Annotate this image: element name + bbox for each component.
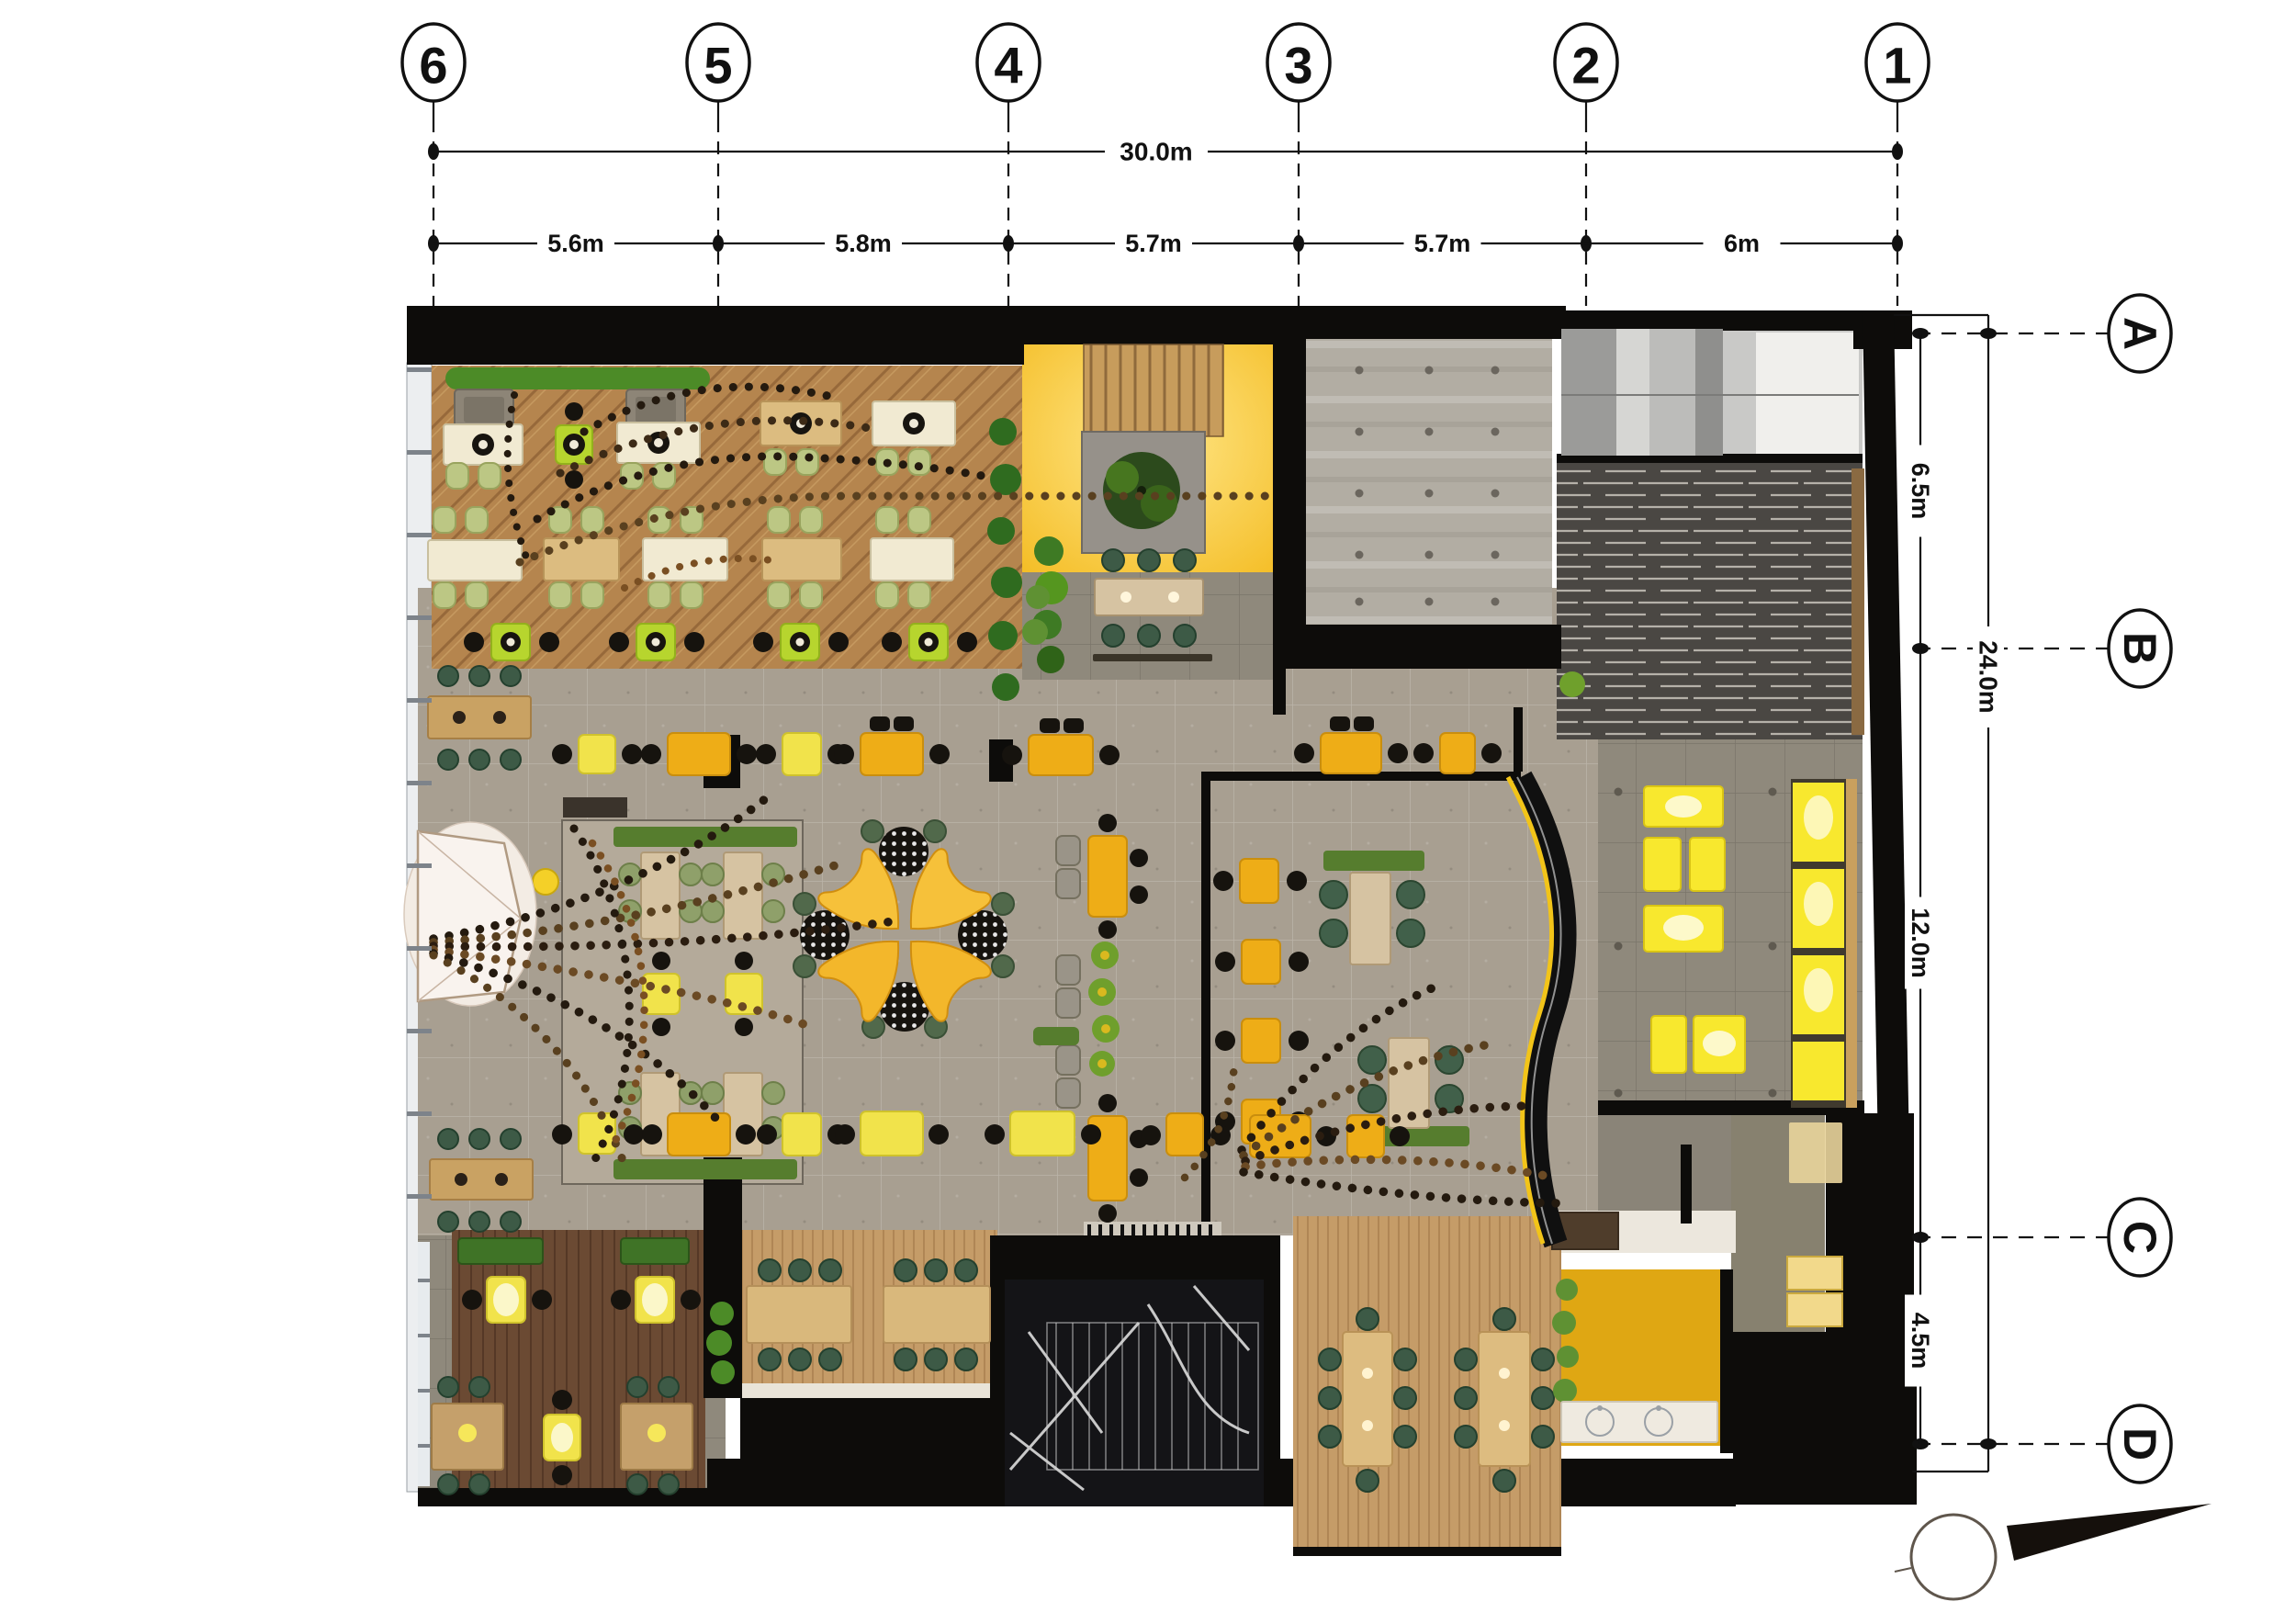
chair-green <box>1394 1426 1416 1448</box>
chair-black <box>985 1124 1005 1145</box>
chair-black <box>622 744 642 764</box>
communal-table <box>430 1159 533 1200</box>
wall-se-dining-south <box>1293 1547 1561 1556</box>
platform-step <box>563 797 627 818</box>
chair-tub-green <box>1358 1046 1386 1074</box>
chair-sage <box>680 863 702 885</box>
chair-black <box>1215 1031 1235 1051</box>
table-lamp-glow <box>909 419 918 428</box>
chair-black <box>1130 1168 1148 1187</box>
chair-black <box>565 402 583 421</box>
door-panel <box>1787 1257 1842 1290</box>
floor-plan-drawing: 65432130.0m5.6m5.8m5.7m5.7m6mABCD6.5m12.… <box>0 0 2296 1624</box>
lounge-table <box>1088 836 1127 917</box>
table-lamp-glow <box>1499 1368 1510 1379</box>
planter-hedge <box>1323 851 1424 871</box>
planter-hedge <box>1370 1126 1469 1146</box>
chair-black <box>532 1290 552 1310</box>
window-strip <box>418 1242 430 1486</box>
shrub <box>1559 671 1585 697</box>
tie-hole <box>1425 551 1434 559</box>
chair-tub-green <box>1320 919 1347 947</box>
dimension-dot <box>1980 328 1997 339</box>
dark-brick-lobby-floor <box>1557 459 1863 739</box>
plant-box <box>458 1238 543 1264</box>
tie-hole <box>1425 598 1434 606</box>
dining-table <box>1343 1332 1392 1466</box>
chair-black <box>870 716 890 731</box>
chair-green <box>469 666 490 686</box>
shrub <box>1026 585 1050 609</box>
chair <box>433 507 456 533</box>
chair <box>681 582 703 608</box>
chair-black <box>552 744 572 764</box>
mullion <box>407 1194 432 1199</box>
planter-hedge <box>613 1159 797 1179</box>
chair-black <box>1289 1031 1309 1051</box>
table-hole <box>453 711 466 724</box>
recliner <box>1056 869 1080 898</box>
granite-tile <box>1616 329 1649 456</box>
chair-black <box>552 1465 572 1485</box>
inner-table <box>1242 940 1280 984</box>
chair-tub-green <box>1397 881 1424 908</box>
chair-green <box>992 955 1014 977</box>
chair-sage <box>762 1082 784 1104</box>
chair-green <box>895 1348 917 1370</box>
chair-black <box>462 1290 482 1310</box>
dimension-dot <box>1980 1438 1997 1449</box>
chair-green <box>1319 1426 1341 1448</box>
communal-table <box>428 696 531 739</box>
chair-green <box>438 666 458 686</box>
chair-black <box>1289 952 1309 972</box>
chair-black <box>736 1124 756 1145</box>
chair-green <box>501 666 521 686</box>
plant <box>1557 1346 1579 1368</box>
flower-center <box>1100 951 1109 960</box>
chair-green <box>1174 625 1196 647</box>
wall-marble-west <box>990 1280 1005 1506</box>
granite-tile <box>1561 329 1616 456</box>
chair-green <box>1319 1348 1341 1370</box>
chair-black <box>1064 718 1084 733</box>
recliner <box>1056 988 1080 1018</box>
inner-table <box>1242 1019 1280 1063</box>
chair <box>764 449 786 475</box>
chair-green <box>658 1474 679 1494</box>
chair-tub-green <box>1397 919 1424 947</box>
chair-black <box>929 744 950 764</box>
chair-black <box>1098 814 1117 832</box>
plant <box>1553 1379 1577 1403</box>
chair-green <box>819 1259 841 1281</box>
mullion <box>407 533 432 537</box>
chair-green <box>469 1129 490 1149</box>
grid-column-label: 4 <box>994 37 1022 95</box>
grid-row-label: B <box>2114 632 2166 665</box>
hall-table <box>1321 733 1381 773</box>
mullion <box>418 1334 430 1337</box>
chair <box>581 582 603 608</box>
chair-green <box>1493 1308 1515 1330</box>
chair-black <box>1287 871 1307 891</box>
grid-column-label: 2 <box>1571 37 1600 95</box>
cypress-plant <box>987 517 1015 545</box>
chair-green <box>469 1212 490 1232</box>
dim-row-segment: 4.5m <box>1907 1313 1934 1370</box>
chair-green <box>1174 549 1196 571</box>
wall-top-entry <box>1019 306 1286 344</box>
mullion <box>418 1389 430 1393</box>
wall-below-center-wood <box>740 1398 997 1459</box>
chair-black <box>1330 716 1350 731</box>
wall-stub-2 <box>1514 707 1523 772</box>
chair-black <box>834 744 854 764</box>
plant-box <box>621 1238 689 1264</box>
dim-col-segment: 6m <box>1724 230 1760 257</box>
recliner <box>1056 1078 1080 1108</box>
lamp-glow <box>647 1424 666 1442</box>
table-lamp-glow <box>1168 592 1179 603</box>
tie-hole <box>1425 490 1434 498</box>
hall-table <box>1440 733 1475 773</box>
chair-black <box>642 1124 662 1145</box>
chair-green <box>955 1348 977 1370</box>
chair <box>768 507 790 533</box>
chair-green <box>658 1377 679 1397</box>
plant <box>706 1330 732 1356</box>
dining-table <box>428 540 522 581</box>
marble-table <box>1095 579 1203 615</box>
chair <box>648 582 670 608</box>
chair <box>800 507 822 533</box>
lamp-glow <box>493 1283 519 1316</box>
granite-vestibule-light <box>1756 333 1859 454</box>
booth-table <box>1651 1016 1686 1073</box>
lamp-glow <box>458 1424 477 1442</box>
mullion <box>418 1279 430 1282</box>
wall-marble-east <box>1264 1235 1280 1506</box>
marble-table <box>1350 873 1390 964</box>
hall-table <box>579 735 615 773</box>
round-table-yellow <box>533 869 558 895</box>
chair-green <box>1356 1308 1379 1330</box>
hall-table <box>782 733 821 775</box>
hall-table <box>1029 735 1093 775</box>
mullion <box>407 1029 432 1033</box>
black-marble-room-floor <box>1003 1280 1267 1506</box>
tie-hole <box>1615 788 1623 796</box>
chair-green <box>1532 1348 1554 1370</box>
chair-black <box>757 1124 777 1145</box>
planter-tree <box>1106 461 1139 494</box>
north-needle <box>2007 1504 2212 1561</box>
door-panel <box>1787 1293 1842 1326</box>
booth-table <box>1644 838 1681 891</box>
chair-black <box>539 632 559 652</box>
lamp-glow <box>1703 1031 1736 1056</box>
chair-black <box>609 632 629 652</box>
wc-faucet <box>1597 1405 1603 1411</box>
north-tail <box>1895 1568 1911 1572</box>
chair <box>908 507 930 533</box>
chair-green <box>1455 1387 1477 1409</box>
mullion <box>407 1111 432 1116</box>
tie-hole <box>1425 428 1434 436</box>
wall-top-east <box>1561 310 1864 331</box>
chair-black <box>1213 871 1233 891</box>
tie-hole <box>1356 367 1364 375</box>
chair-green <box>1455 1348 1477 1370</box>
grid-row-label: C <box>2114 1221 2166 1254</box>
tree <box>1037 646 1064 673</box>
chair-tub-green <box>1320 881 1347 908</box>
dim-total-height: 24.0m <box>1975 640 2003 713</box>
chair-green <box>925 1259 947 1281</box>
chair-black <box>1098 1094 1117 1112</box>
wall-marble-north <box>990 1235 1277 1280</box>
dining-table <box>884 1286 990 1343</box>
chair-green <box>438 1474 458 1494</box>
chair-sage <box>702 863 724 885</box>
table-lamp-glow <box>1362 1368 1373 1379</box>
hall-table <box>861 1111 923 1156</box>
tie-hole <box>1491 428 1500 436</box>
hall-table <box>1010 1111 1075 1156</box>
table-hole <box>493 711 506 724</box>
plant <box>711 1360 735 1384</box>
chair-green <box>992 893 1014 915</box>
lamp-glow <box>1804 795 1833 840</box>
chair-black <box>1388 743 1408 763</box>
tie-hole <box>1491 490 1500 498</box>
wall-inner-room-west <box>1201 772 1210 1236</box>
chair-black <box>1294 743 1314 763</box>
chair <box>433 582 456 608</box>
wall-concrete-room-south <box>1273 625 1561 669</box>
mullion <box>407 863 432 868</box>
chair-black <box>652 952 670 970</box>
flower-center <box>1101 1024 1110 1033</box>
planter-hedge <box>613 827 797 847</box>
flower-center <box>1097 1059 1107 1068</box>
chair-green <box>438 1129 458 1149</box>
table-lamp-glow <box>796 638 805 647</box>
tie-hole <box>1769 942 1777 951</box>
chair-black <box>552 1390 572 1410</box>
tree <box>1034 536 1064 566</box>
wall-stub-1 <box>1273 669 1286 715</box>
chair-green <box>793 955 816 977</box>
tie-hole <box>1491 598 1500 606</box>
recliner <box>1056 836 1080 865</box>
table-lamp-glow <box>1362 1420 1373 1431</box>
table-lamp-glow <box>925 638 933 647</box>
table-dot-cloth <box>879 827 929 876</box>
chair-green <box>469 750 490 770</box>
bench-rail <box>1093 654 1212 661</box>
grid-column-label: 6 <box>419 37 447 95</box>
concrete-room-floor <box>1306 335 1552 625</box>
mullion <box>407 450 432 455</box>
dim-col-segment: 5.7m <box>1125 230 1182 257</box>
tie-hole <box>1491 367 1500 375</box>
wall-service-1 <box>1681 1145 1692 1224</box>
granite-tile <box>1649 329 1695 456</box>
lamp-glow <box>642 1283 668 1316</box>
north-circle <box>1911 1515 1996 1599</box>
tie-hole <box>1769 788 1777 796</box>
chair-sage <box>762 900 784 922</box>
chair <box>446 463 468 489</box>
hall-table <box>861 733 923 775</box>
chair-black <box>1215 952 1235 972</box>
chair-green <box>627 1474 647 1494</box>
chair-green <box>1356 1470 1379 1492</box>
chair-green <box>627 1377 647 1397</box>
booth-table <box>1690 838 1725 891</box>
chair-black <box>652 1018 670 1036</box>
recliner <box>1056 1045 1080 1075</box>
dining-table <box>762 538 841 581</box>
tie-hole <box>1615 942 1623 951</box>
chair-black <box>828 632 849 652</box>
chair-black <box>1354 716 1374 731</box>
tie-hole <box>1356 598 1364 606</box>
chair-green <box>1319 1387 1341 1409</box>
mullion <box>407 781 432 785</box>
table-lamp-glow <box>654 438 663 447</box>
floor-plan-page: 65432130.0m5.6m5.8m5.7m5.7m6mABCD6.5m12.… <box>0 0 2296 1624</box>
mullion <box>407 367 432 372</box>
hall-table <box>668 733 730 775</box>
inner-room-floor <box>1209 777 1517 1235</box>
table-lamp-glow <box>1499 1420 1510 1431</box>
chair-black <box>1098 1204 1117 1223</box>
hall-table <box>579 1113 615 1154</box>
wc-vanity-counter <box>1561 1402 1717 1442</box>
chair-black <box>882 632 902 652</box>
chair-green <box>861 820 884 842</box>
chair <box>768 582 790 608</box>
mullion <box>407 698 432 703</box>
chair-green <box>469 1377 490 1397</box>
chair-green <box>789 1348 811 1370</box>
entry-slat-canopy <box>1084 344 1223 436</box>
tie-hole <box>1491 551 1500 559</box>
chair-black <box>735 1018 753 1036</box>
dimension-dot <box>428 143 439 160</box>
chair-black <box>641 744 661 764</box>
cypress-plant <box>988 621 1018 650</box>
chair-green <box>1394 1387 1416 1409</box>
chair-green <box>1102 625 1124 647</box>
mullion <box>407 946 432 951</box>
plant <box>1552 1311 1576 1335</box>
dim-col-segment: 5.7m <box>1414 230 1471 257</box>
chair-green <box>1532 1387 1554 1409</box>
chair-green <box>759 1348 781 1370</box>
chair-black <box>756 744 776 764</box>
flower-center <box>1097 987 1107 997</box>
chair-black <box>1002 745 1022 765</box>
chair-green <box>438 1377 458 1397</box>
cypress-plant <box>990 464 1021 495</box>
banquette-wood-edge <box>1846 779 1857 1108</box>
chair-black <box>684 632 704 652</box>
dining-table <box>871 538 953 581</box>
tie-hole <box>1356 490 1364 498</box>
tie-hole <box>1615 1089 1623 1098</box>
dining-table <box>1479 1332 1530 1466</box>
chair-sage <box>702 1082 724 1104</box>
wc-faucet <box>1656 1405 1661 1411</box>
chair <box>478 463 501 489</box>
chair-green <box>1394 1348 1416 1370</box>
tie-hole <box>1356 428 1364 436</box>
chair-green <box>819 1348 841 1370</box>
hall-table <box>1166 1113 1203 1156</box>
chair-green <box>1532 1426 1554 1448</box>
mullion <box>418 1444 430 1448</box>
chair-black <box>737 744 757 764</box>
chair-green <box>924 820 946 842</box>
chair-green <box>793 893 816 915</box>
chair-black <box>1390 1126 1410 1146</box>
chair-green <box>469 1474 490 1494</box>
chair <box>876 507 898 533</box>
grid-column-label: 5 <box>703 37 732 95</box>
chair-green <box>955 1259 977 1281</box>
dim-total-width: 30.0m <box>1120 138 1192 166</box>
dining-table <box>544 538 619 581</box>
table-lamp-glow <box>569 440 579 449</box>
chair-black <box>1481 743 1502 763</box>
table-lamp-glow <box>1120 592 1131 603</box>
inner-table <box>1240 859 1278 903</box>
chair-tub-green <box>1358 1085 1386 1112</box>
dim-row-segment: 12.0m <box>1907 908 1934 978</box>
hall-table <box>782 1113 821 1156</box>
table-hole <box>495 1173 508 1186</box>
chair-black <box>565 470 583 489</box>
banquette-table <box>1793 1042 1844 1100</box>
center-wood-ledge <box>740 1383 997 1398</box>
wall-mass-se <box>1733 1332 1917 1505</box>
chair-black <box>1141 1125 1161 1145</box>
dimension-dot <box>1892 143 1903 160</box>
wall-top-west <box>418 306 1024 365</box>
chair-black <box>611 1290 631 1310</box>
table-lamp-glow <box>478 440 488 449</box>
hall-table <box>668 1113 730 1156</box>
chair <box>466 582 488 608</box>
chair-black <box>753 632 773 652</box>
booth-sofa-cushion <box>464 397 504 423</box>
wall-top-center <box>1281 306 1566 339</box>
chair <box>908 449 930 475</box>
grid-row-label: D <box>2114 1427 2166 1460</box>
recliner <box>1056 955 1080 985</box>
lamp-glow <box>551 1423 573 1452</box>
table-lamp-glow <box>507 638 515 647</box>
chair-black <box>1130 885 1148 904</box>
chair-black <box>681 1290 701 1310</box>
table-lamp-glow <box>652 638 660 647</box>
tie-hole <box>1356 551 1364 559</box>
chair-black <box>735 952 753 970</box>
